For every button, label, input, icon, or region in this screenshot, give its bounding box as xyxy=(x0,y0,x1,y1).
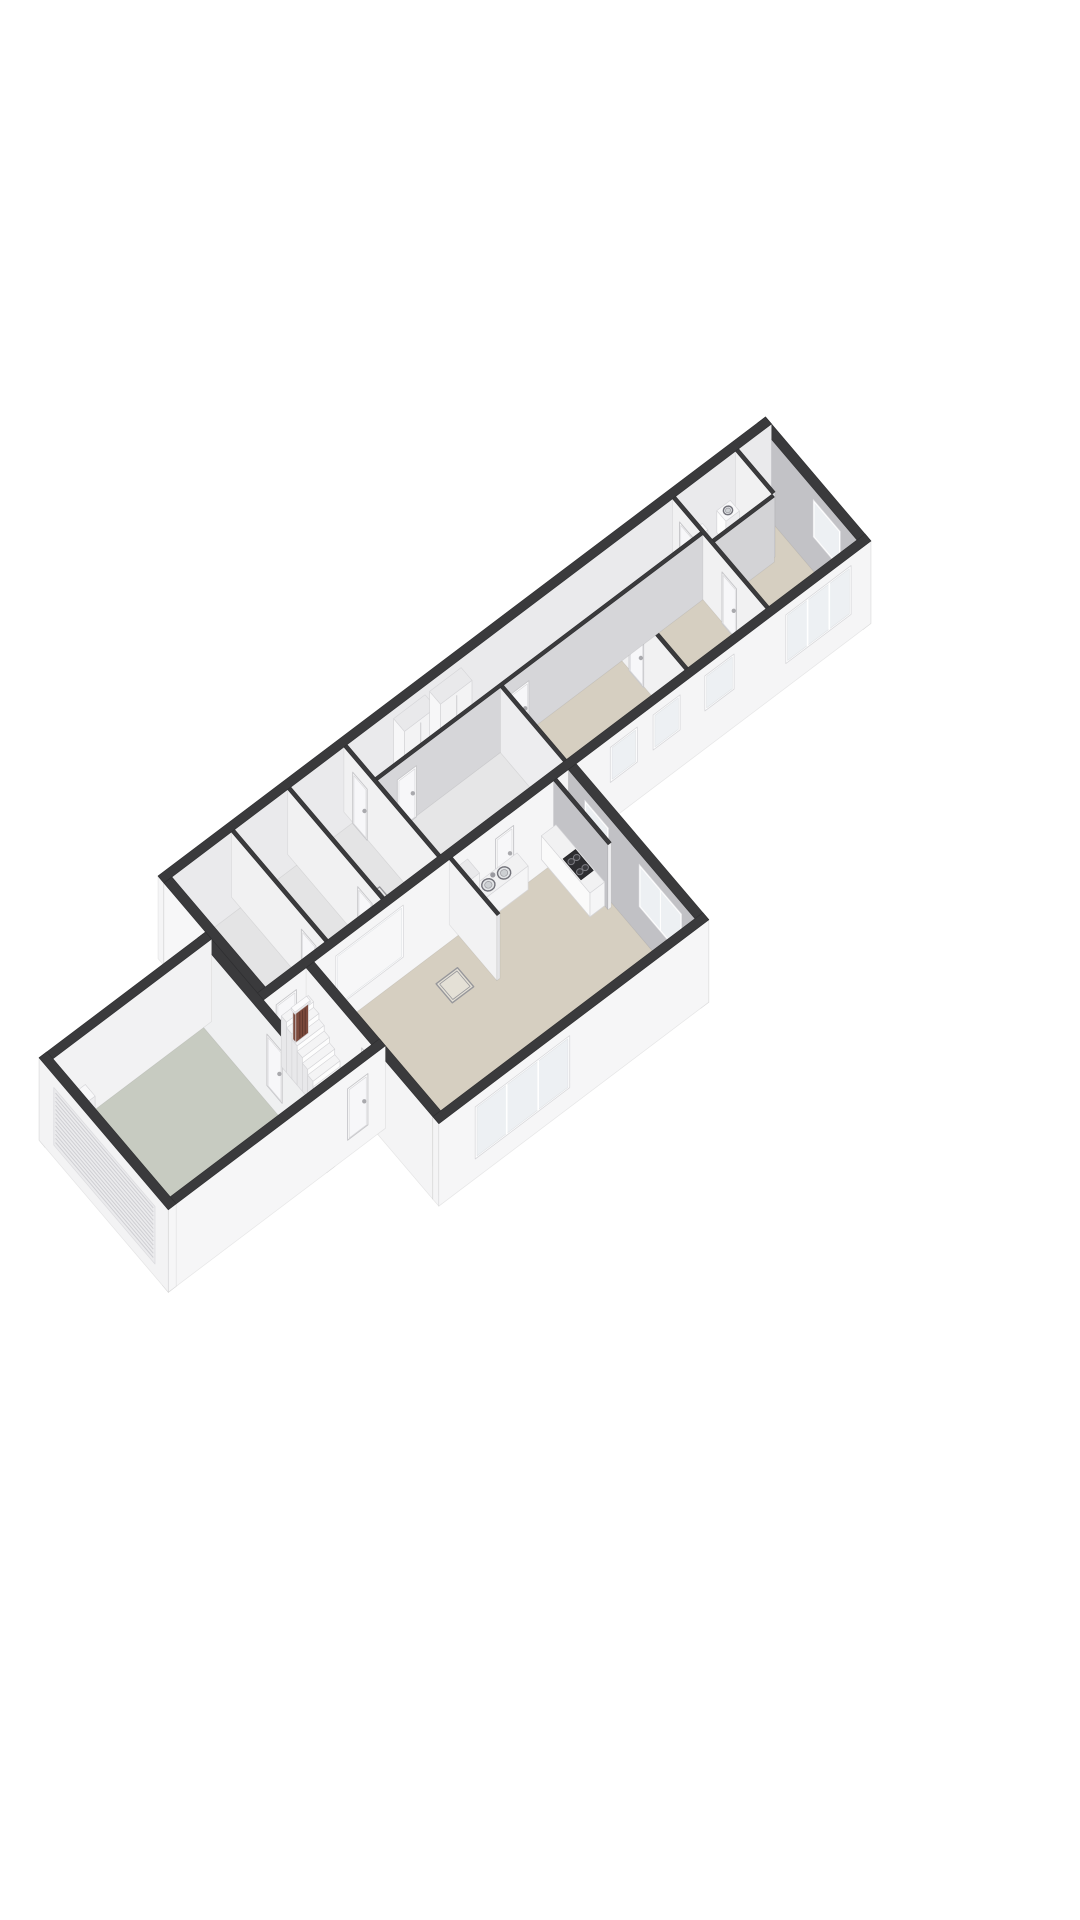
floorplan-3d-render xyxy=(0,0,1080,1920)
page xyxy=(0,0,1080,1920)
floorplan-figure xyxy=(0,0,1080,1920)
